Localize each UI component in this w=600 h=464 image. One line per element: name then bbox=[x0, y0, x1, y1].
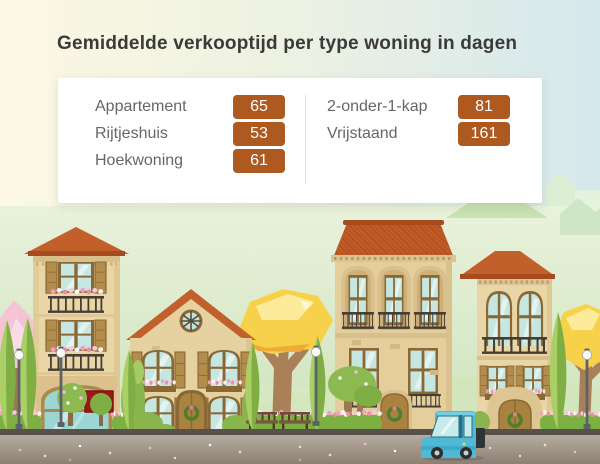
housing-type-row: Hoekwoning 61 bbox=[95, 149, 285, 173]
days-value-badge: 53 bbox=[233, 122, 285, 146]
housing-type-row: 2-onder-1-kap 81 bbox=[327, 95, 510, 119]
housing-type-label: 2-onder-1-kap bbox=[327, 98, 428, 116]
infographic-title: Gemiddelde verkooptijd per type woning i… bbox=[57, 33, 517, 55]
housing-type-label: Hoekwoning bbox=[95, 152, 183, 170]
housing-type-row: Appartement 65 bbox=[95, 95, 285, 119]
front-door bbox=[176, 390, 207, 433]
days-value-badge: 81 bbox=[458, 95, 510, 119]
days-value-badge: 161 bbox=[458, 122, 510, 146]
village-illustration bbox=[0, 0, 600, 464]
road bbox=[0, 429, 600, 464]
data-card: Appartement 65 Rijtjeshuis 53 Hoekwoning… bbox=[58, 78, 542, 203]
housing-type-label: Rijtjeshuis bbox=[95, 125, 168, 143]
days-value-badge: 65 bbox=[233, 95, 285, 119]
infographic-page: { "title": "Gemiddelde verkooptijd per t… bbox=[0, 0, 600, 464]
front-door bbox=[377, 390, 412, 433]
days-value-badge: 61 bbox=[233, 149, 285, 173]
data-column-left: Appartement 65 Rijtjeshuis 53 Hoekwoning… bbox=[58, 95, 305, 203]
housing-type-label: Appartement bbox=[95, 98, 187, 116]
front-door bbox=[487, 387, 542, 433]
data-column-right: 2-onder-1-kap 81 Vrijstaand 161 bbox=[306, 95, 542, 203]
housing-type-row: Vrijstaand 161 bbox=[327, 122, 510, 146]
housing-type-label: Vrijstaand bbox=[327, 125, 398, 143]
housing-type-row: Rijtjeshuis 53 bbox=[95, 122, 285, 146]
